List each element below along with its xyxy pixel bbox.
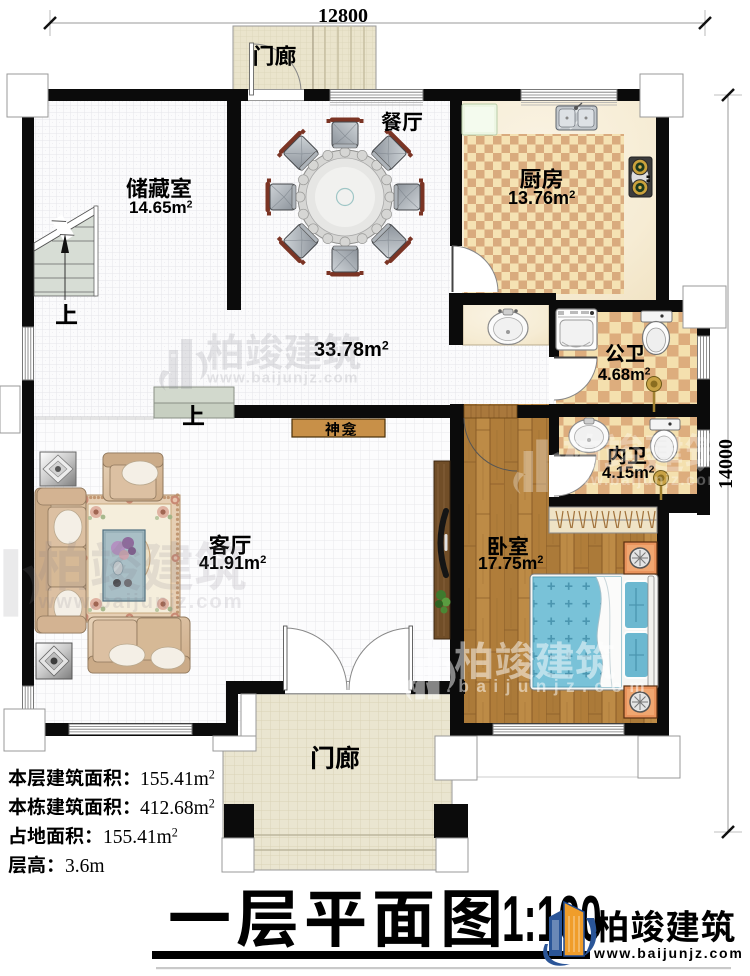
svg-text:www.baijunjz.com: www.baijunjz.com (383, 676, 652, 696)
svg-text:155.41m2: 155.41m2 (103, 826, 178, 848)
svg-text:13.76m2: 13.76m2 (508, 188, 575, 208)
svg-text:www.baijunjz.com: www.baijunjz.com (206, 370, 359, 387)
svg-text:4.68m2: 4.68m2 (598, 366, 651, 384)
svg-text:14000: 14000 (715, 439, 737, 489)
svg-text:12800: 12800 (318, 5, 368, 27)
svg-text:155.41m2: 155.41m2 (140, 768, 215, 790)
svg-text:3.6m: 3.6m (65, 856, 105, 877)
svg-text:www.baijunjz.com: www.baijunjz.com (593, 945, 744, 961)
svg-text:17.75m2: 17.75m2 (478, 553, 543, 573)
svg-text:14.65m2: 14.65m2 (129, 198, 193, 217)
svg-text:412.68m2: 412.68m2 (140, 797, 215, 819)
svg-text:www.baijunjz.com: www.baijunjz.com (38, 591, 244, 613)
svg-text:www.baijunjz.com: www.baijunjz.com (563, 472, 723, 489)
